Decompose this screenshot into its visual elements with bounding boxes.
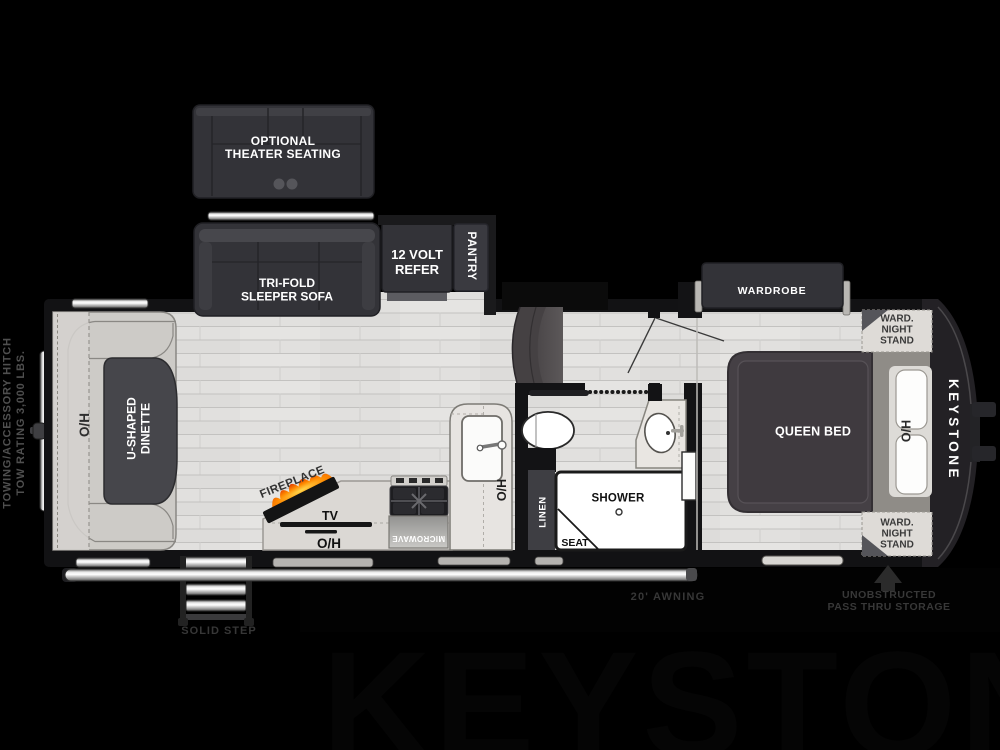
svg-text:TV: TV	[322, 509, 339, 523]
svg-text:THEATER SEATING: THEATER SEATING	[225, 147, 341, 161]
svg-text:KEYSTONE: KEYSTONE	[322, 620, 1000, 750]
svg-text:QUEEN BED: QUEEN BED	[775, 425, 851, 439]
svg-text:TOWING/ACCESSORY HITCHTOW RATI: TOWING/ACCESSORY HITCHTOW RATING 3,000 L…	[2, 337, 28, 508]
svg-text:REFER: REFER	[395, 262, 440, 277]
svg-text:WARD.: WARD.	[880, 518, 914, 529]
svg-text:SEAT: SEAT	[561, 537, 589, 549]
svg-text:PASS THRU STORAGE: PASS THRU STORAGE	[827, 601, 950, 613]
svg-text:UNOBSTRUCTED: UNOBSTRUCTED	[842, 589, 936, 601]
svg-text:O/H: O/H	[317, 536, 341, 551]
svg-text:MICROWAVE: MICROWAVE	[392, 534, 445, 543]
svg-text:20' AWNING: 20' AWNING	[631, 591, 706, 603]
svg-text:STAND: STAND	[880, 336, 914, 347]
svg-text:SHOWER: SHOWER	[592, 493, 645, 505]
svg-text:LINEN: LINEN	[538, 496, 549, 528]
svg-text:O/H: O/H	[900, 420, 914, 442]
svg-text:PANTRY: PANTRY	[465, 232, 477, 281]
svg-text:STAND: STAND	[880, 540, 914, 551]
svg-text:SOLID STEP: SOLID STEP	[181, 625, 256, 637]
svg-text:WARDROBE: WARDROBE	[738, 285, 807, 297]
svg-text:SLEEPER SOFA: SLEEPER SOFA	[241, 290, 333, 304]
svg-text:12 VOLT: 12 VOLT	[391, 247, 443, 262]
svg-text:NIGHT: NIGHT	[881, 325, 912, 336]
svg-text:NIGHT: NIGHT	[881, 529, 912, 540]
svg-text:U-SHAPEDDINETTE: U-SHAPEDDINETTE	[125, 397, 153, 460]
svg-text:O/H: O/H	[77, 413, 92, 437]
svg-text:OPTIONAL: OPTIONAL	[251, 134, 315, 148]
svg-text:KEYSTONE: KEYSTONE	[946, 379, 961, 481]
svg-text:O/H: O/H	[495, 479, 509, 501]
svg-text:TRI-FOLD: TRI-FOLD	[259, 276, 315, 290]
svg-text:WARD.: WARD.	[880, 314, 914, 325]
